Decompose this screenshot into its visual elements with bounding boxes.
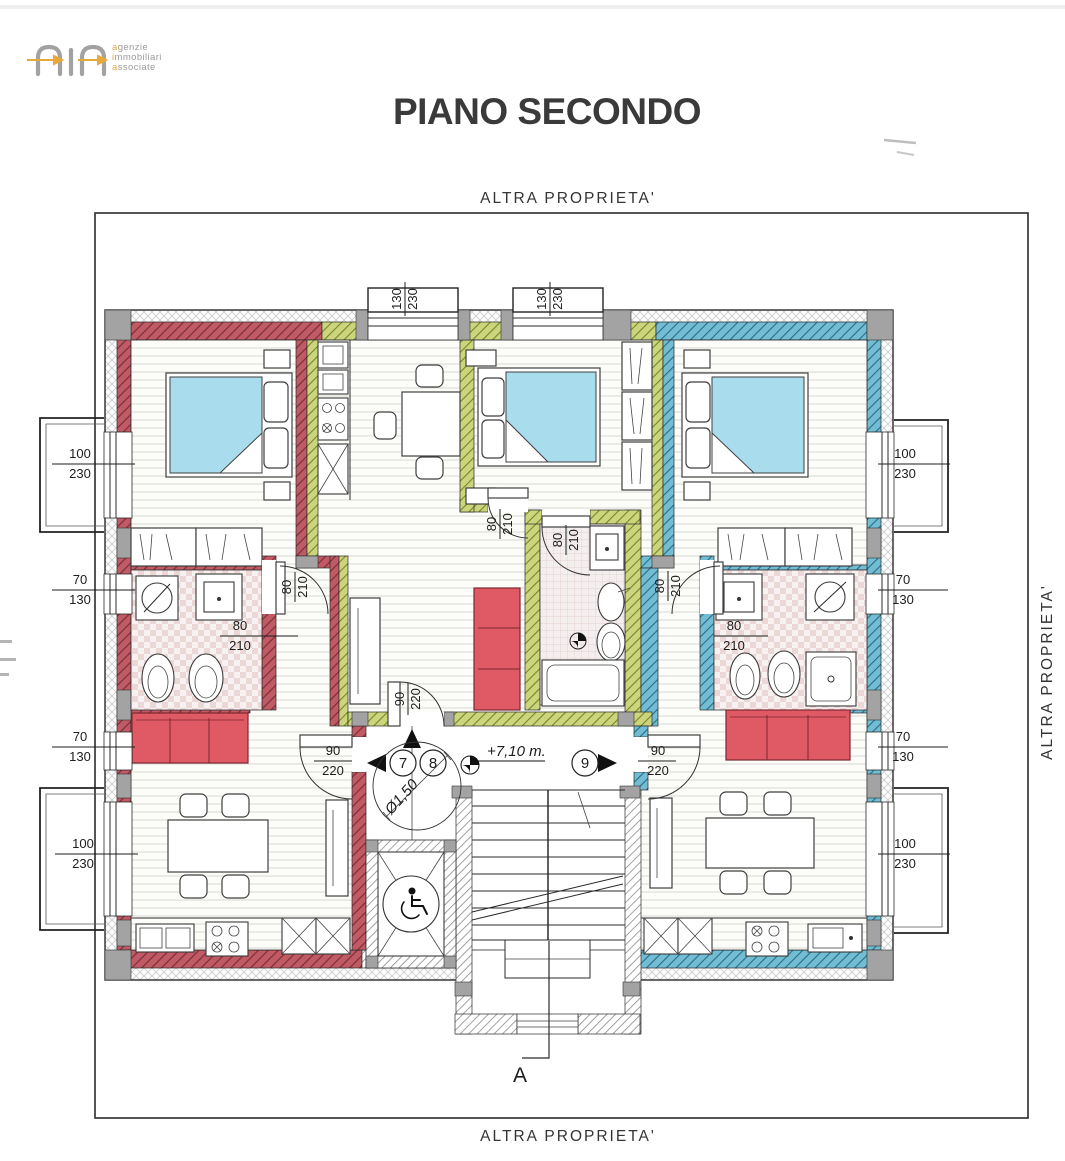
svg-text:220: 220 [322, 763, 344, 778]
svg-text:220: 220 [408, 688, 423, 710]
sink-icon [590, 526, 624, 570]
bathtub-icon [542, 660, 624, 706]
svg-text:70: 70 [73, 729, 87, 744]
svg-text:90: 90 [326, 743, 340, 758]
window [104, 432, 132, 518]
svg-text:220: 220 [647, 763, 669, 778]
bidet-icon [142, 654, 174, 702]
logo-line-3: associate [112, 62, 156, 73]
stove-icon [318, 398, 348, 440]
svg-text:70: 70 [896, 572, 910, 587]
svg-text:90: 90 [651, 743, 665, 758]
window [866, 574, 894, 614]
door-number-7: 7 [390, 750, 416, 776]
stove-icon [206, 922, 248, 956]
wardrobe-middle [622, 342, 652, 490]
svg-text:80: 80 [233, 618, 247, 633]
floorplan-drawing: agenzie immobiliari associate PIANO SECO… [0, 0, 1065, 1161]
sofa-right-apartment [726, 710, 850, 760]
svg-text:130: 130 [69, 592, 91, 607]
svg-text:230: 230 [550, 288, 565, 310]
svg-text:100: 100 [894, 836, 916, 851]
cabinet-x-icon [316, 918, 350, 954]
svg-text:100: 100 [69, 446, 91, 461]
shower-icon [136, 576, 178, 620]
svg-text:130: 130 [892, 749, 914, 764]
svg-text:210: 210 [668, 575, 683, 597]
nightstand [264, 482, 290, 500]
svg-text:230: 230 [894, 466, 916, 481]
svg-text:230: 230 [894, 856, 916, 871]
sink-icon [196, 574, 242, 620]
svg-text:130: 130 [892, 592, 914, 607]
window [104, 574, 132, 614]
svg-text:130: 130 [534, 288, 549, 310]
nightstand [466, 350, 496, 366]
svg-text:210: 210 [295, 576, 310, 598]
svg-text:210: 210 [566, 529, 581, 551]
window [866, 432, 894, 518]
svg-text:210: 210 [500, 513, 515, 535]
bidet-icon [730, 653, 760, 699]
shower-icon [806, 574, 854, 620]
svg-text:80: 80 [652, 579, 667, 593]
boundary-label-right: ALTRA PROPRIETA' [1039, 584, 1056, 760]
shower-tray-icon [806, 652, 856, 706]
scan-edge-strip [0, 5, 1065, 9]
page-title: PIANO SECONDO [393, 91, 701, 132]
svg-text:80: 80 [484, 517, 499, 531]
nightstand [684, 482, 710, 500]
door-number-label: 9 [581, 755, 589, 772]
svg-text:130: 130 [69, 749, 91, 764]
stove-icon [746, 922, 788, 956]
toilet-icon [189, 654, 223, 702]
svg-text:210: 210 [723, 638, 745, 653]
svg-text:100: 100 [72, 836, 94, 851]
door-number-label: 7 [399, 755, 407, 772]
cabinet-left-apartment [326, 800, 348, 896]
svg-text:100: 100 [894, 446, 916, 461]
sink-icon [318, 370, 348, 394]
boundary-label-top: ALTRA PROPRIETA' [480, 190, 656, 207]
sideboard-middle-apartment [350, 598, 380, 704]
kitchen-middle [318, 340, 350, 500]
nightstand [684, 350, 710, 368]
sink-icon [808, 924, 862, 952]
window [866, 802, 894, 916]
nightstand [264, 350, 290, 368]
svg-text:70: 70 [896, 729, 910, 744]
svg-text:90: 90 [392, 692, 407, 706]
bed-left-apartment [166, 350, 292, 500]
svg-text:230: 230 [69, 466, 91, 481]
level-label: +7,10 m. [487, 743, 546, 760]
svg-text:230: 230 [405, 288, 420, 310]
svg-text:80: 80 [279, 580, 294, 594]
door-number-8: 8 [420, 750, 446, 776]
window [866, 732, 894, 770]
sofa-middle-apartment [474, 588, 520, 710]
cabinet-x-icon [644, 918, 678, 954]
svg-text:230: 230 [72, 856, 94, 871]
svg-text:80: 80 [550, 533, 565, 547]
window [104, 802, 132, 916]
cabinet-right-apartment [650, 798, 672, 888]
section-label: A [513, 1064, 527, 1087]
toilet-icon [768, 651, 800, 697]
fridge-icon [318, 342, 348, 368]
kitchen-right [641, 918, 867, 956]
door-number-9: 9 [572, 750, 598, 776]
elevator [366, 840, 456, 968]
sofa-left-apartment [132, 713, 248, 763]
bathroom-middle [540, 524, 630, 706]
bed-right-apartment [682, 350, 808, 500]
svg-text:70: 70 [73, 572, 87, 587]
scanned-floorplan-page: agenzie immobiliari associate PIANO SECO… [0, 0, 1065, 1161]
sink-icon [136, 924, 194, 952]
agency-logo: agenzie immobiliari associate [27, 42, 162, 74]
toilet-icon [597, 623, 625, 661]
cabinet-x-icon [282, 918, 316, 954]
svg-text:210: 210 [229, 638, 251, 653]
drain-symbol-icon [570, 633, 586, 649]
window [104, 732, 132, 770]
boundary-label-bottom: ALTRA PROPRIETA' [480, 1128, 656, 1145]
svg-text:80: 80 [727, 618, 741, 633]
wardrobe-right [718, 528, 852, 566]
svg-text:130: 130 [389, 288, 404, 310]
cabinet-x-icon [318, 444, 348, 494]
kitchen-left [131, 918, 350, 956]
cabinet-x-icon [678, 918, 712, 954]
wardrobe-left [131, 528, 262, 566]
